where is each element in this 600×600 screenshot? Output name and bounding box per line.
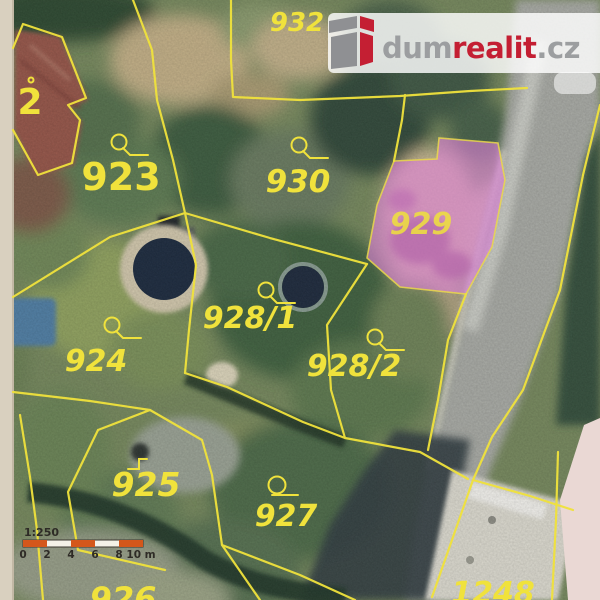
logo-text-dum: dum: [382, 31, 452, 65]
parcel-label-924: 924: [65, 344, 128, 379]
scale-tick: 6: [91, 549, 98, 561]
parcel-label-932: 932: [270, 8, 324, 38]
dumrealit-logo-text: dumrealit.cz: [382, 31, 580, 65]
logo-text-cz: .cz: [536, 31, 580, 65]
scale-ratio: 1:250: [24, 526, 59, 539]
cadastral-map-screenshot: 2 923 932 930 929 928/1 928/2 924 925 92…: [0, 0, 600, 600]
scale-tick: 0: [19, 549, 26, 561]
dumrealit-logo-icon: [329, 16, 374, 69]
parcel-label-929: 929: [390, 207, 453, 242]
logo-band-tab: [554, 72, 596, 94]
cadastral-map-image: 2 923 932 930 929 928/1 928/2 924 925 92…: [0, 0, 600, 600]
parcel-label-926: 926: [90, 580, 157, 600]
logo-text-realit: realit: [452, 31, 537, 65]
parcel-label-930: 930: [266, 164, 331, 200]
parcel-label-928-1: 928/1: [203, 301, 297, 336]
parcel-label-1248: 1248: [451, 576, 535, 600]
scale-tick: 2: [43, 549, 50, 561]
parcel-label-923: 923: [81, 155, 160, 199]
scan-edge-left: [0, 0, 13, 600]
scale-tick: 4: [67, 549, 74, 561]
scan-edge-left-line: [12, 0, 14, 600]
scale-tick: 8: [115, 549, 122, 561]
parcel-label-925: 925: [112, 465, 181, 504]
parcel-label-927: 927: [255, 499, 318, 534]
parcel-label-2: 2: [17, 82, 42, 123]
parcel-label-928-2: 928/2: [307, 349, 401, 384]
scale-tick: 10 m: [126, 549, 155, 561]
